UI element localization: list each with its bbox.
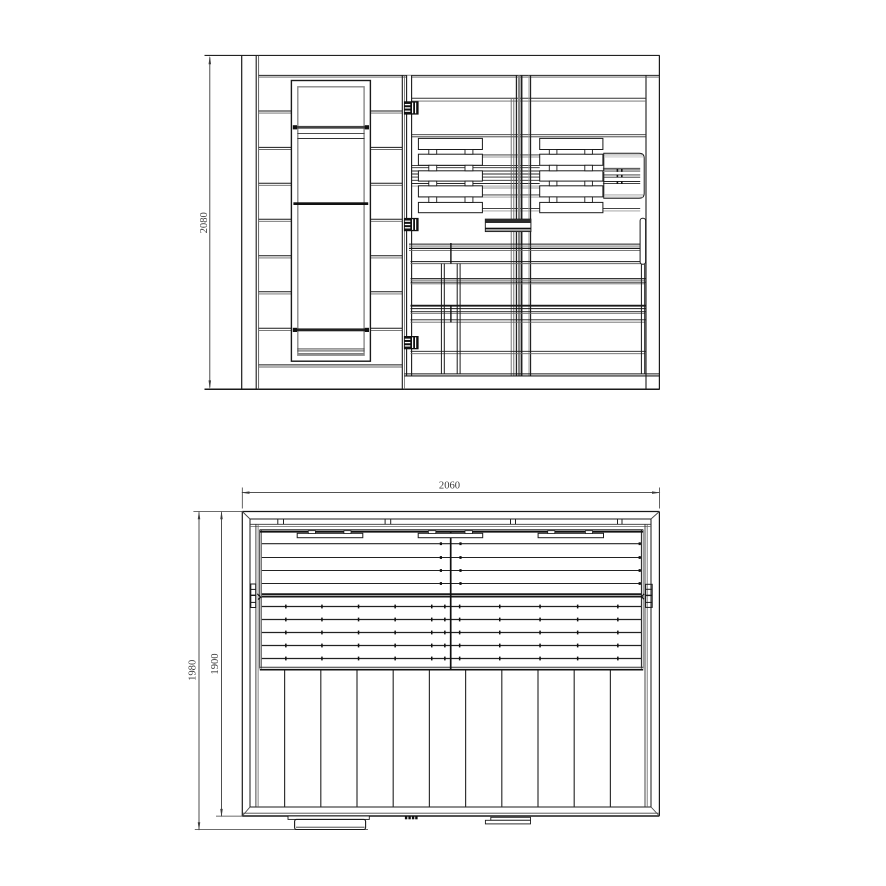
svg-text:1900: 1900 [210, 653, 221, 674]
svg-text:2080: 2080 [199, 212, 210, 233]
svg-text:2060: 2060 [439, 481, 460, 492]
svg-text:1980: 1980 [188, 660, 199, 681]
